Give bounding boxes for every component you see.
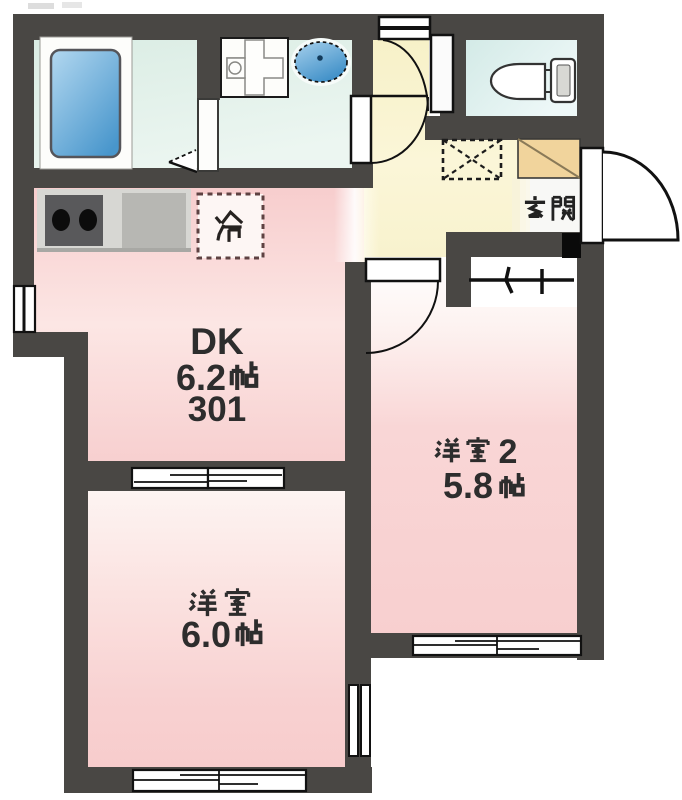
svg-text:301: 301 <box>188 390 246 429</box>
svg-text:2: 2 <box>499 433 518 471</box>
svg-text:6.0: 6.0 <box>181 614 231 655</box>
svg-text:5.8: 5.8 <box>443 465 493 506</box>
svg-text:DK: DK <box>190 321 244 362</box>
